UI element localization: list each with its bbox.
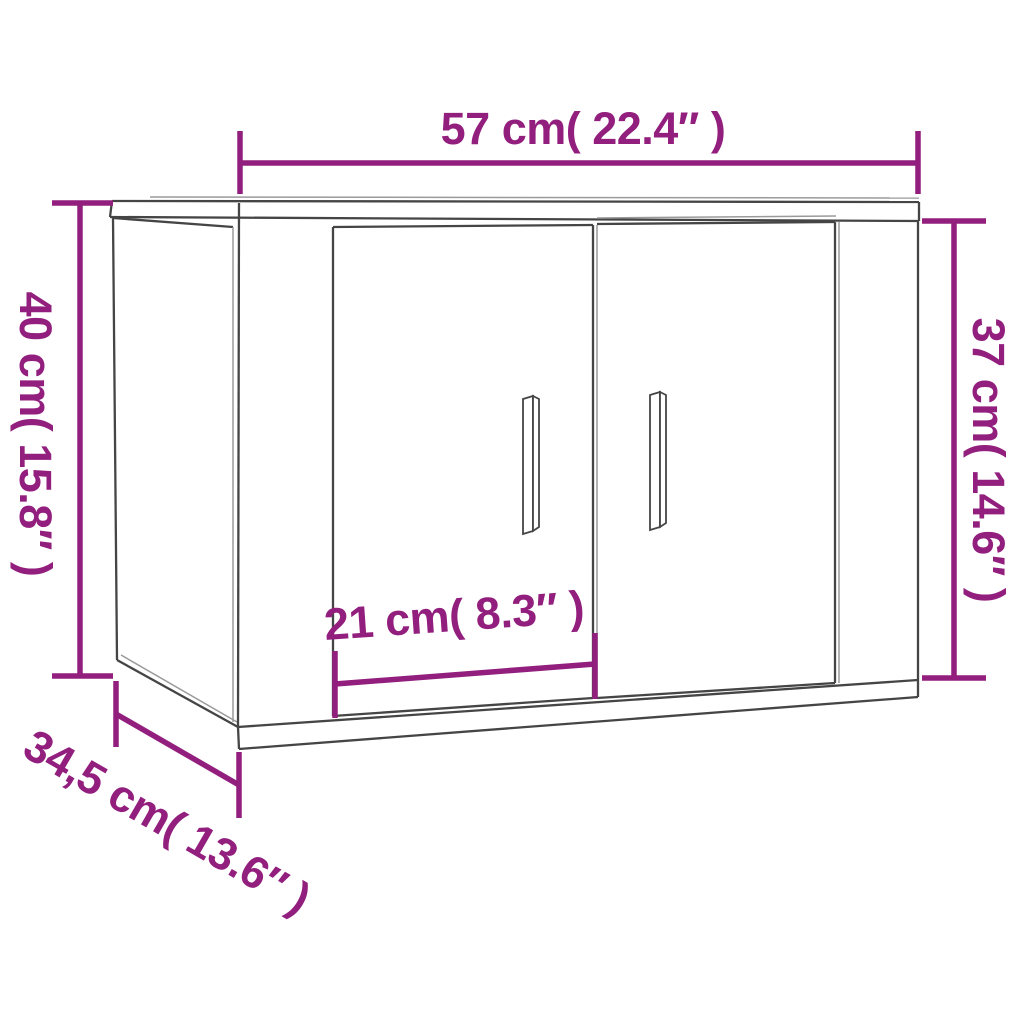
side-panel-bottom-edge (117, 660, 238, 727)
top-panel-back-edge (112, 201, 919, 202)
dimension-diagram: 57 cm( 22.4″ ) 40 cm( 15.8″ ) 37 cm( 14.… (0, 0, 1024, 1024)
right-door-handle-side (660, 392, 666, 527)
left-door-top-edge (333, 225, 593, 227)
cabinet-drawing (110, 197, 919, 749)
dimension-lines (52, 131, 986, 818)
width-dim-label: 57 cm( 22.4″ ) (441, 103, 726, 155)
side-panel-top-edge (113, 218, 233, 227)
door-width-dim-line (335, 664, 595, 684)
right-door-handle-front (650, 392, 660, 530)
bottom-front-edge (238, 680, 918, 727)
height-right-dim-label: 37 cm( 14.6″ ) (962, 318, 1014, 603)
left-door-bottom-edge (333, 698, 593, 716)
height-left-dim-label: 40 cm( 15.8″ ) (9, 292, 61, 577)
top-panel-front-edge (110, 217, 919, 221)
side-panel-left-edge (113, 218, 117, 660)
bottom-panel-left-edge (238, 727, 239, 749)
side-panel-bottom-inner-edge (121, 655, 237, 722)
front-left-corner-line (238, 203, 239, 726)
bottom-panel-lower-edge (239, 697, 918, 749)
top-panel-underside-edge (597, 216, 836, 218)
left-door-handle-front (523, 396, 533, 534)
right-door-top-edge (597, 222, 835, 224)
left-door-handle-side (533, 396, 539, 531)
right-door-bottom-edge (597, 683, 835, 698)
top-panel-back-edge-highlight (150, 197, 919, 198)
